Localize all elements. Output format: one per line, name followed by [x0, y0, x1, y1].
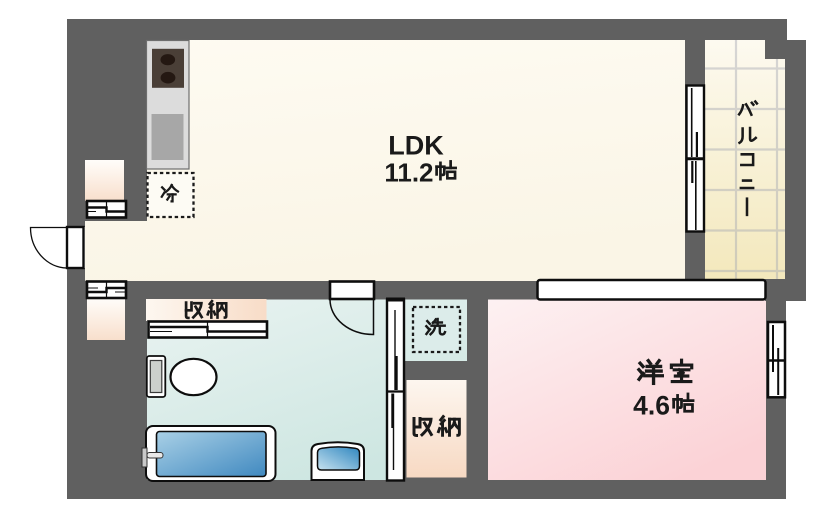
svg-text:4.6: 4.6 — [633, 391, 670, 421]
svg-text:LDK: LDK — [388, 131, 444, 161]
svg-text:11.2: 11.2 — [384, 158, 433, 188]
